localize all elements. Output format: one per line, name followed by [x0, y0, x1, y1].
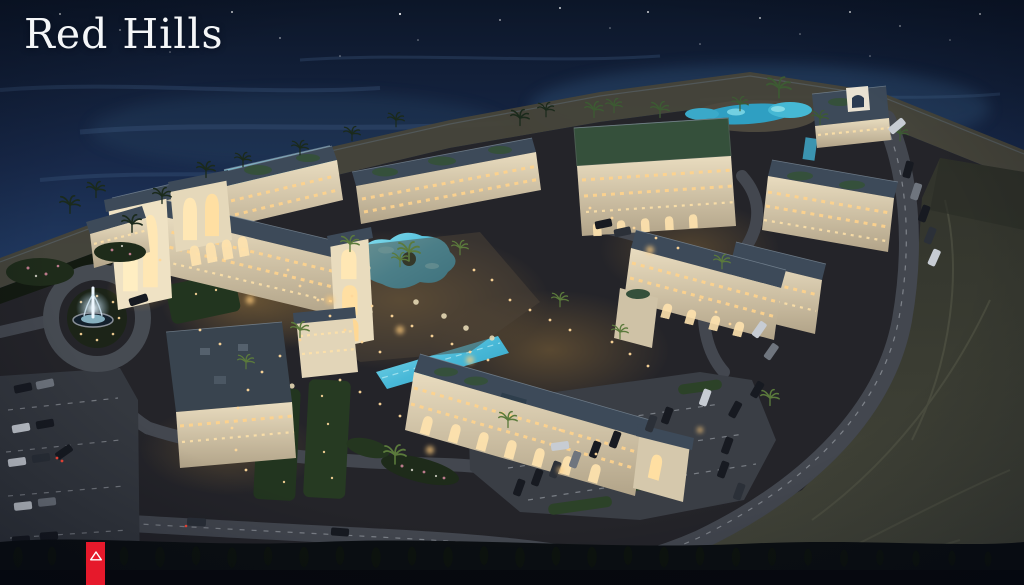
brand-logo-text: Red Hills — [24, 10, 224, 58]
brand-ribbon — [86, 542, 105, 585]
vignette-overlay — [0, 0, 1024, 585]
mountain-triangle-icon — [90, 551, 102, 561]
resort-aerial-render — [0, 0, 1024, 585]
hero-image: Red Hills — [0, 0, 1024, 585]
brand-logo: Red Hills — [24, 14, 224, 55]
